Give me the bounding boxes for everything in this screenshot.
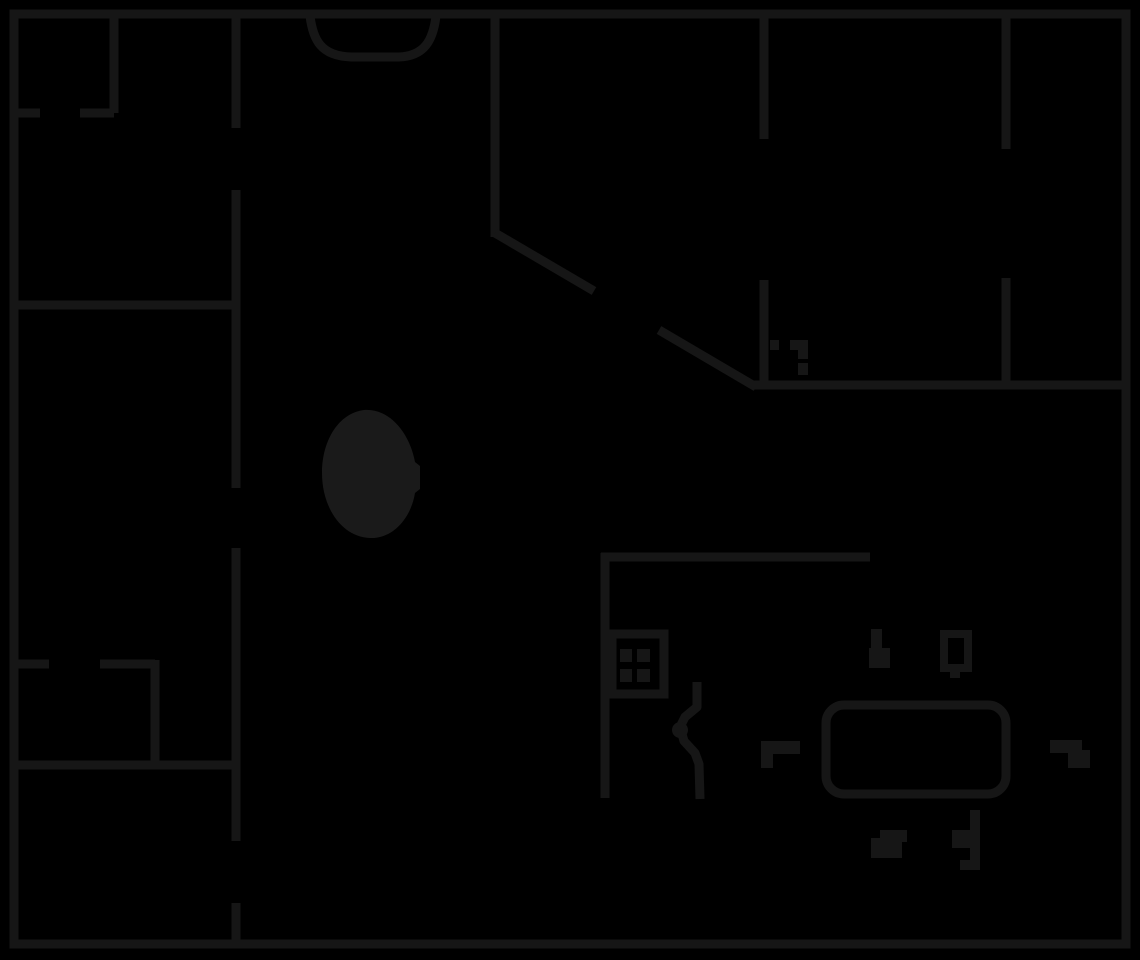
mug-decor-tab	[950, 667, 960, 678]
stove-burner-4	[637, 669, 650, 682]
candle-decor-stem	[871, 629, 882, 649]
stove-burner-1	[620, 649, 632, 662]
stove-burner-3	[620, 669, 632, 682]
background	[0, 0, 1140, 960]
door-jamb-step	[798, 350, 808, 359]
squiggle-knob	[672, 722, 688, 738]
note-decor-bulge	[952, 830, 970, 848]
door-jamb-block	[798, 363, 808, 375]
door-jamb-tick	[770, 340, 779, 350]
dash-decor-left-bar	[761, 741, 800, 754]
floorplan	[0, 0, 1140, 960]
floorplan-svg	[0, 0, 1140, 960]
door-jamb-bar	[790, 340, 808, 350]
dash-decor-left-leg	[761, 754, 773, 768]
shoe-decor-base	[871, 838, 902, 858]
note-decor-bar	[970, 810, 980, 870]
candle-decor-base	[869, 648, 890, 668]
stove-burner-2	[637, 649, 650, 662]
dash-decor-right-leg	[1068, 750, 1090, 768]
note-decor-foot	[960, 860, 970, 870]
